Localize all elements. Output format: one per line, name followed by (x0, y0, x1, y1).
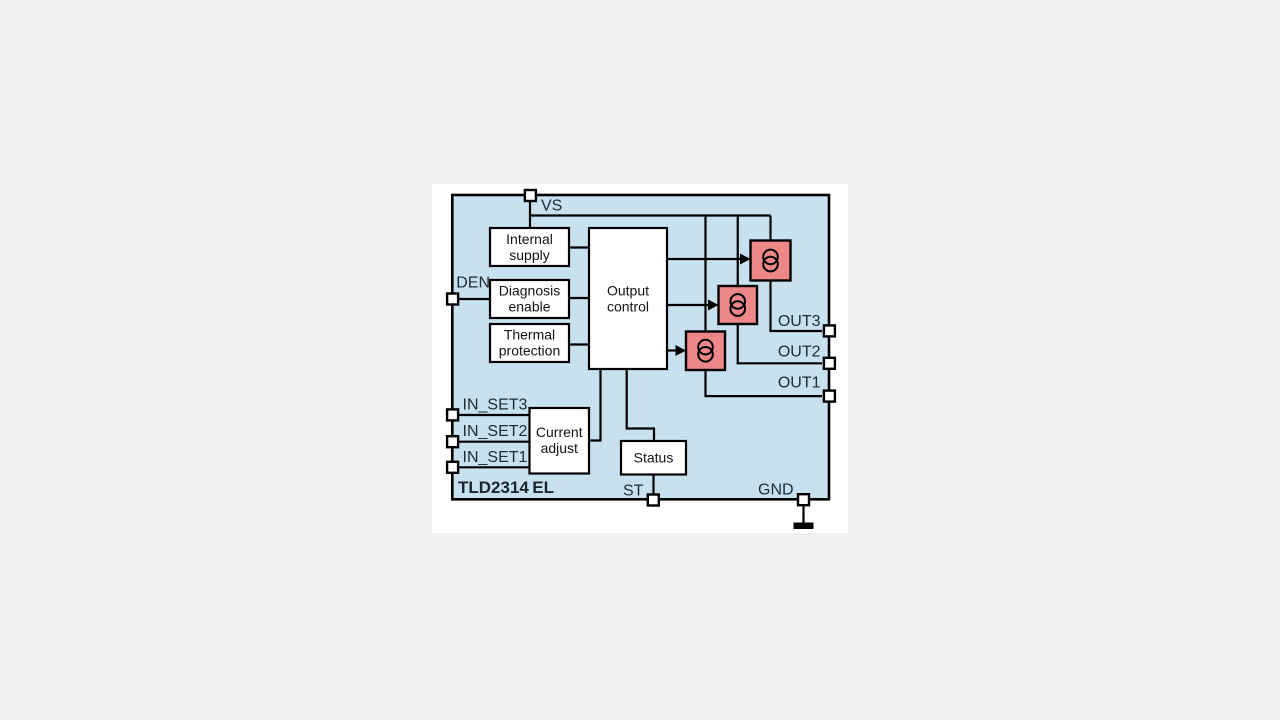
svg-text:Current: Current (536, 424, 583, 440)
svg-text:ST: ST (623, 483, 644, 500)
svg-text:IN_SET3: IN_SET3 (463, 397, 528, 414)
svg-text:TLD2314 EL: TLD2314 EL (458, 478, 554, 497)
svg-text:IN_SET1: IN_SET1 (463, 449, 528, 466)
svg-text:Status: Status (634, 450, 674, 466)
svg-text:Output: Output (607, 283, 649, 299)
svg-text:GND: GND (758, 482, 794, 499)
svg-text:OUT3: OUT3 (778, 313, 821, 330)
svg-text:Internal: Internal (506, 231, 553, 247)
svg-text:Diagnosis: Diagnosis (499, 283, 560, 299)
svg-text:DEN: DEN (456, 275, 490, 292)
svg-text:supply: supply (509, 247, 549, 263)
svg-text:OUT2: OUT2 (778, 344, 821, 361)
svg-text:protection: protection (499, 343, 560, 359)
svg-text:IN_SET2: IN_SET2 (463, 423, 528, 440)
svg-text:Thermal: Thermal (504, 327, 555, 343)
svg-text:control: control (607, 299, 649, 315)
svg-text:VS: VS (541, 198, 562, 215)
svg-text:enable: enable (508, 299, 550, 315)
svg-text:OUT1: OUT1 (778, 375, 821, 392)
svg-text:adjust: adjust (541, 440, 578, 456)
